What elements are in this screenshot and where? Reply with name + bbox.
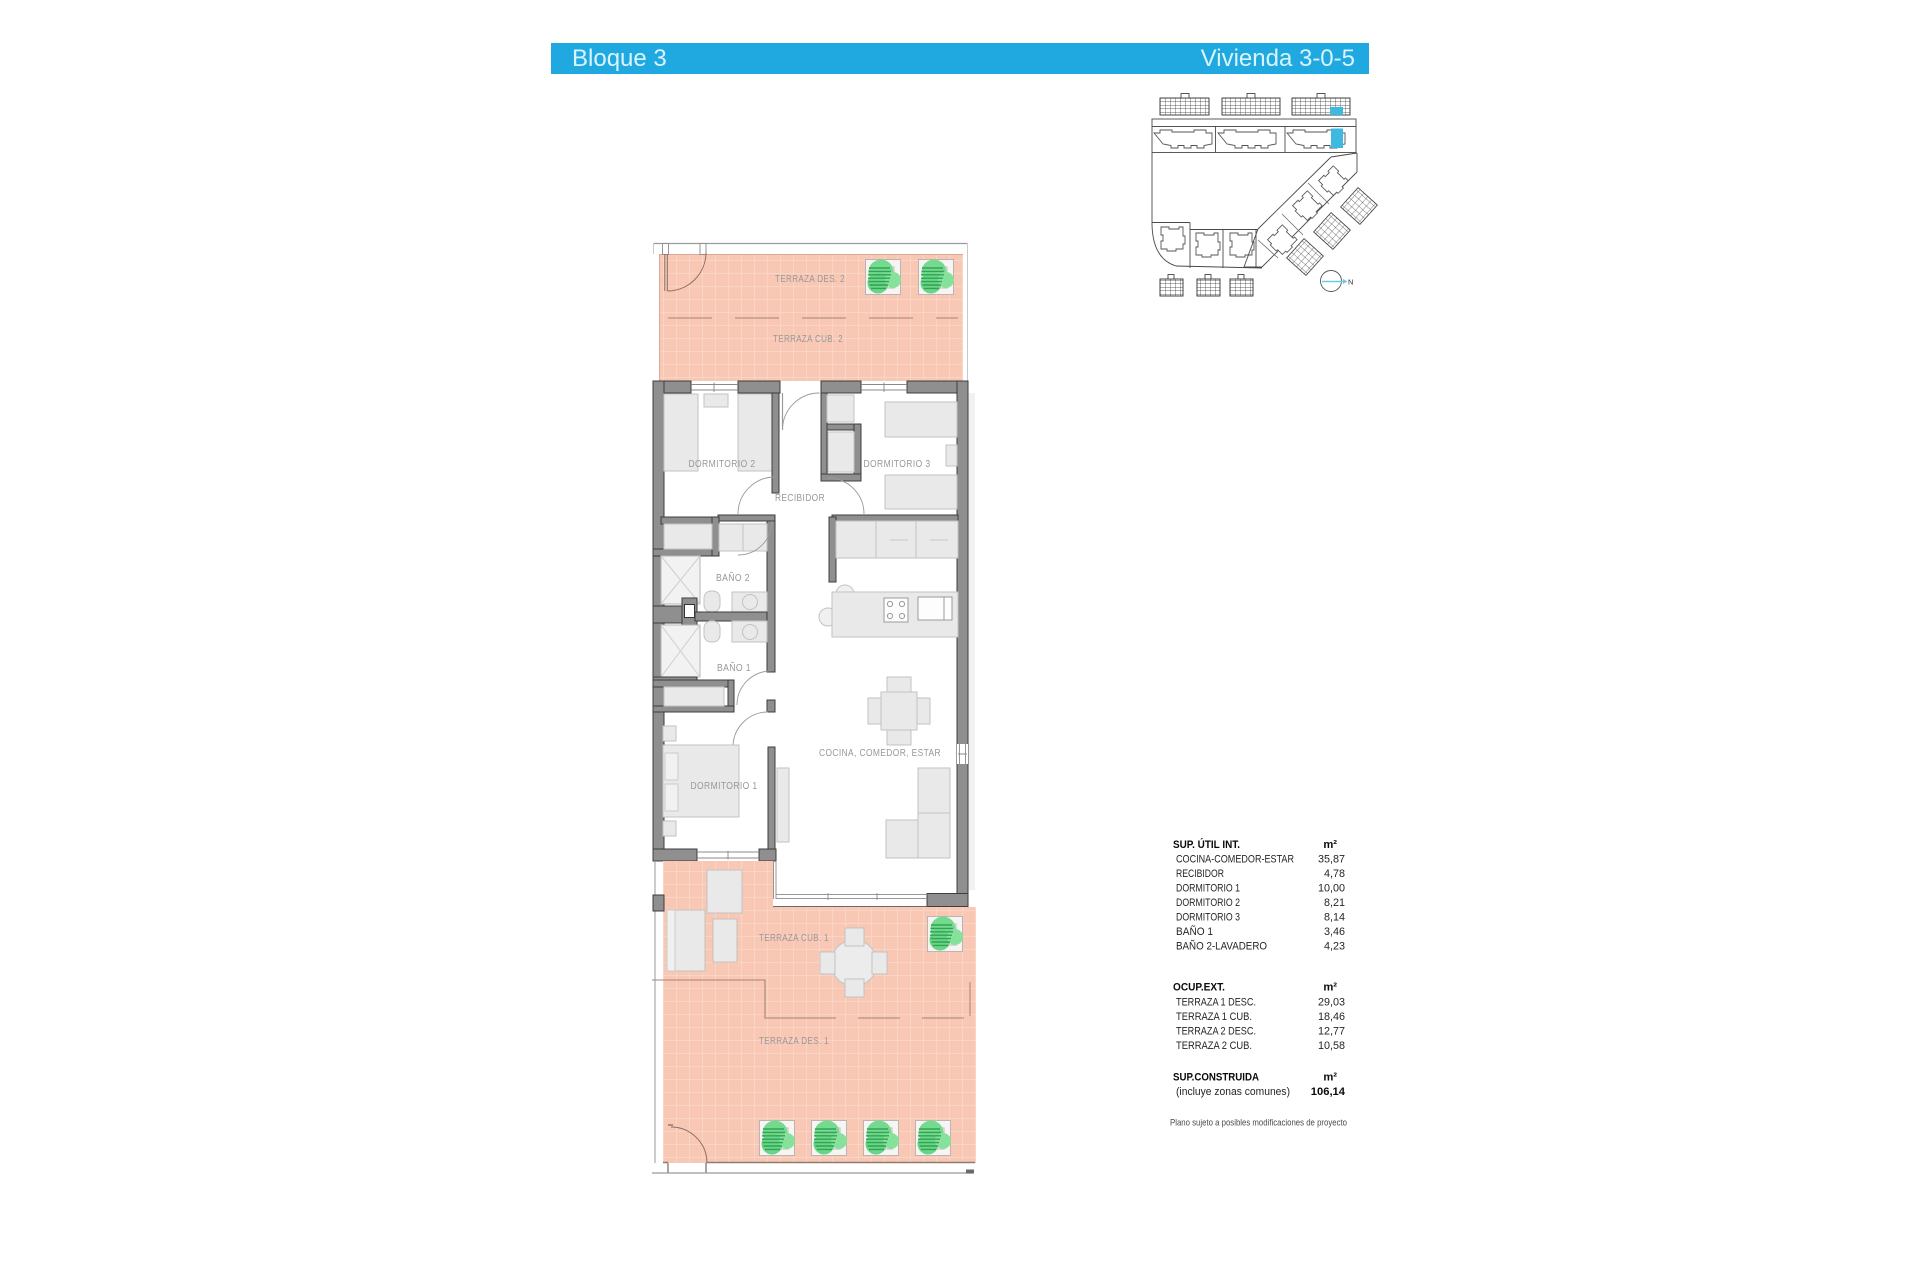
svg-text:18,46: 18,46 — [1318, 1011, 1345, 1023]
svg-text:BAÑO 2: BAÑO 2 — [716, 573, 750, 584]
svg-text:4,23: 4,23 — [1324, 941, 1345, 953]
svg-text:12,77: 12,77 — [1318, 1026, 1345, 1038]
svg-text:TERRAZA 1 CUB.: TERRAZA 1 CUB. — [1176, 1011, 1252, 1023]
svg-text:COCINA-COMEDOR-ESTAR: COCINA-COMEDOR-ESTAR — [1176, 854, 1294, 866]
svg-text:m²: m² — [1323, 839, 1337, 851]
svg-text:BAÑO 2-LAVADERO: BAÑO 2-LAVADERO — [1176, 940, 1267, 953]
svg-text:m²: m² — [1323, 1072, 1337, 1084]
svg-text:106,14: 106,14 — [1311, 1086, 1346, 1098]
svg-text:m²: m² — [1323, 982, 1337, 994]
svg-text:4,78: 4,78 — [1324, 868, 1345, 880]
svg-text:RECIBIDOR: RECIBIDOR — [1176, 868, 1224, 880]
svg-text:Bloque 3: Bloque 3 — [572, 45, 667, 72]
svg-text:COCINA, COMEDOR, ESTAR: COCINA, COMEDOR, ESTAR — [819, 748, 941, 759]
svg-text:TERRAZA 1 DESC.: TERRAZA 1 DESC. — [1176, 997, 1256, 1009]
svg-text:BAÑO 1: BAÑO 1 — [1176, 925, 1213, 938]
svg-text:Plano sujeto a posibles modifi: Plano sujeto a posibles modificaciones d… — [1170, 1118, 1347, 1128]
svg-text:DORMITORIO 3: DORMITORIO 3 — [864, 459, 931, 470]
svg-text:TERRAZA CUB. 1: TERRAZA CUB. 1 — [759, 933, 829, 944]
svg-text:SUP.CONSTRUIDA: SUP.CONSTRUIDA — [1173, 1072, 1259, 1084]
svg-text:DORMITORIO 1: DORMITORIO 1 — [1176, 883, 1240, 895]
svg-text:(incluye zonas comunes): (incluye zonas comunes) — [1176, 1086, 1290, 1098]
svg-text:10,00: 10,00 — [1318, 883, 1345, 895]
svg-text:SUP. ÚTIL INT.: SUP. ÚTIL INT. — [1173, 838, 1240, 851]
svg-text:DORMITORIO 2: DORMITORIO 2 — [689, 459, 756, 470]
svg-text:BAÑO 1: BAÑO 1 — [717, 663, 751, 674]
svg-text:35,87: 35,87 — [1318, 854, 1345, 866]
svg-text:10,58: 10,58 — [1318, 1040, 1345, 1052]
svg-text:8,14: 8,14 — [1324, 912, 1345, 924]
svg-text:TERRAZA 2 CUB.: TERRAZA 2 CUB. — [1176, 1040, 1252, 1052]
svg-text:Vivienda 3-0-5: Vivienda 3-0-5 — [1201, 45, 1355, 72]
svg-text:DORMITORIO 1: DORMITORIO 1 — [691, 781, 758, 792]
svg-text:N: N — [1348, 278, 1353, 287]
svg-text:RECIBIDOR: RECIBIDOR — [775, 493, 825, 504]
svg-text:DORMITORIO 2: DORMITORIO 2 — [1176, 897, 1240, 909]
svg-text:OCUP.EXT.: OCUP.EXT. — [1173, 982, 1225, 994]
svg-text:TERRAZA 2 DESC.: TERRAZA 2 DESC. — [1176, 1026, 1256, 1038]
svg-text:3,46: 3,46 — [1324, 926, 1345, 938]
svg-text:DORMITORIO 3: DORMITORIO 3 — [1176, 912, 1240, 924]
svg-text:TERRAZA CUB. 2: TERRAZA CUB. 2 — [773, 334, 843, 345]
svg-text:29,03: 29,03 — [1318, 997, 1345, 1009]
svg-text:TERRAZA DES. 1: TERRAZA DES. 1 — [759, 1036, 829, 1047]
svg-text:8,21: 8,21 — [1324, 897, 1345, 909]
svg-text:TERRAZA DES. 2: TERRAZA DES. 2 — [775, 274, 845, 285]
